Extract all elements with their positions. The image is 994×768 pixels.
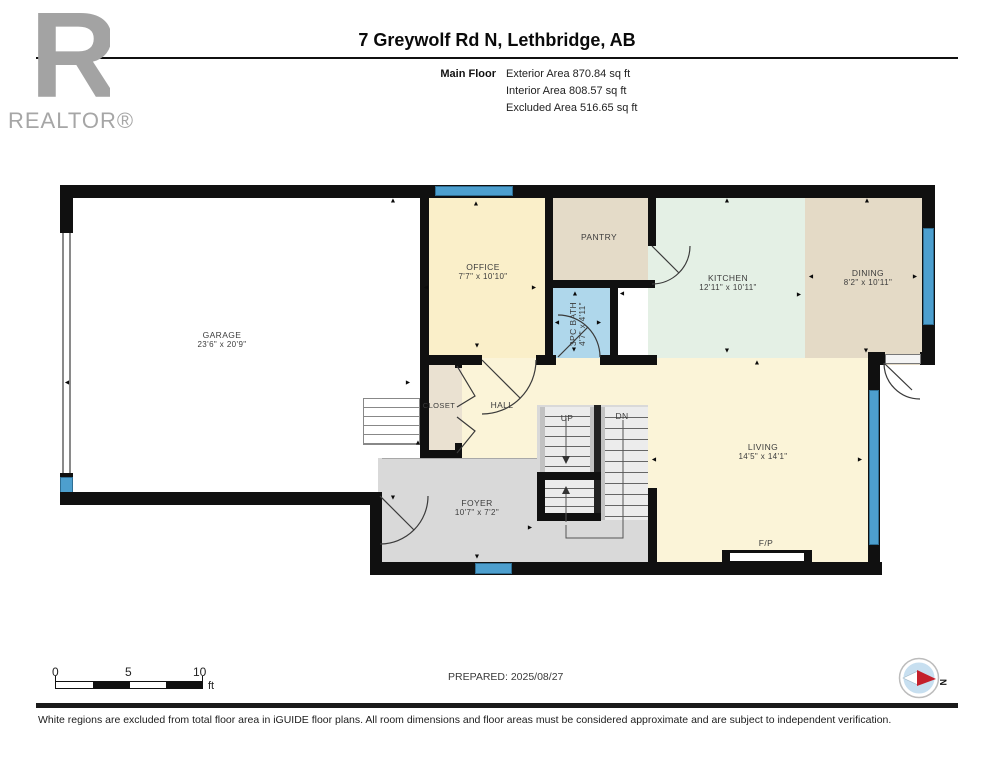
dimension-arrow: ► xyxy=(405,380,412,387)
dimension-arrow: ► xyxy=(912,274,919,281)
hall-label: HALL xyxy=(491,400,514,410)
compass: N xyxy=(893,652,955,704)
dimension-arrow: ▲ xyxy=(754,360,761,367)
footer-disclaimer: White regions are excluded from total fl… xyxy=(38,714,968,726)
dimension-arrow: ▼ xyxy=(474,343,481,350)
dimension-arrow: ▼ xyxy=(571,347,578,354)
closet-label: CLOSET xyxy=(423,401,455,411)
wall-pantry-kitchen xyxy=(648,198,656,246)
wall-office-bottom-left xyxy=(420,355,482,365)
scale-unit: ft xyxy=(208,680,214,692)
living-window xyxy=(869,390,879,545)
dimension-arrow: ◄ xyxy=(423,285,430,292)
dimension-arrow: ◄ xyxy=(619,291,626,298)
wall-left-upper xyxy=(60,185,73,233)
wall-closet-bottom xyxy=(420,450,462,458)
garage-label: GARAGE23'6" x 20'9" xyxy=(197,330,246,350)
dimension-arrow: ▼ xyxy=(863,348,870,355)
bath-label: 3PC BATH4'7" x 4'11" xyxy=(568,302,588,346)
wall-garage-office xyxy=(420,198,429,458)
garage-entry-steps xyxy=(363,398,420,445)
dimension-arrow: ▲ xyxy=(724,198,731,205)
wall-dining-notch-left xyxy=(868,352,885,365)
dimension-arrow: ► xyxy=(796,292,803,299)
footer-rule xyxy=(36,703,958,708)
stair-wall-right-lower xyxy=(648,488,657,562)
office-window xyxy=(435,186,513,196)
dimension-arrow: ▼ xyxy=(724,348,731,355)
scale-bar xyxy=(55,681,203,689)
dimension-arrow: ◄ xyxy=(554,320,561,327)
patio-door-leaf xyxy=(885,354,921,364)
wall-pantry-bottom xyxy=(545,280,655,288)
dimension-arrow: ◄ xyxy=(651,457,658,464)
scale-seg-2 xyxy=(93,682,130,688)
wall-closet-top-stub xyxy=(455,360,462,368)
stairs-dn-label: DN xyxy=(615,411,628,421)
wall-dining-notch-right xyxy=(920,352,935,365)
dimension-arrow: ▲ xyxy=(415,440,422,447)
living-label: LIVING14'5" x 14'1" xyxy=(738,442,787,462)
stairs-up-label: UP xyxy=(561,413,574,423)
fireplace-label: F/P xyxy=(759,538,773,548)
office-label: OFFICE7'7" x 10'10" xyxy=(458,262,507,282)
foyer-label: FOYER10'7" x 7'2" xyxy=(455,498,499,518)
prepared-date: PREPARED: 2025/08/27 xyxy=(448,671,563,683)
dining-label: DINING8'2" x 10'11" xyxy=(844,268,892,288)
dimension-arrow: ► xyxy=(596,320,603,327)
dimension-arrow: ▲ xyxy=(390,198,397,205)
wall-garage-bottom xyxy=(60,492,378,505)
stairs-down-flight xyxy=(601,407,648,520)
pantry-label: PANTRY xyxy=(581,232,617,242)
scale-seg-1 xyxy=(56,682,93,688)
foyer-step-line xyxy=(382,458,537,459)
dimension-arrow: ▼ xyxy=(390,495,397,502)
stair-wall-bottom xyxy=(537,513,601,521)
dimension-arrow: ▲ xyxy=(864,198,871,205)
scale-tick-5: 5 xyxy=(125,665,132,679)
kitchen-label: KITCHEN12'11" x 10'11" xyxy=(699,273,757,293)
scale-seg-3 xyxy=(130,682,166,688)
dimension-arrow: ► xyxy=(527,525,534,532)
scale-tick-10: 10 xyxy=(193,665,206,679)
garage-door xyxy=(62,233,71,473)
dimension-arrow: ◄ xyxy=(64,380,71,387)
fireplace-inner xyxy=(730,553,804,561)
stairs-up-lower-flight xyxy=(540,480,594,513)
dining-window xyxy=(923,228,934,325)
wall-bath-bottom xyxy=(600,355,657,365)
wall-office-bottom-right xyxy=(536,355,556,365)
floor-plan: GARAGE23'6" x 20'9" OFFICE7'7" x 10'10" … xyxy=(0,0,994,768)
dimension-arrow: ◄ xyxy=(808,274,815,281)
front-door xyxy=(475,563,512,574)
compass-n: N xyxy=(938,679,948,686)
scale-seg-4 xyxy=(166,682,202,688)
dimension-arrow: ► xyxy=(531,285,538,292)
dimension-arrow: ▲ xyxy=(473,201,480,208)
dimension-arrow: ▲ xyxy=(572,291,579,298)
dimension-arrow: ▼ xyxy=(474,554,481,561)
stair-wall-mid xyxy=(537,472,601,480)
stair-wall-divider xyxy=(594,405,601,520)
dimension-arrow: ► xyxy=(857,457,864,464)
wall-bath-right xyxy=(610,288,618,365)
